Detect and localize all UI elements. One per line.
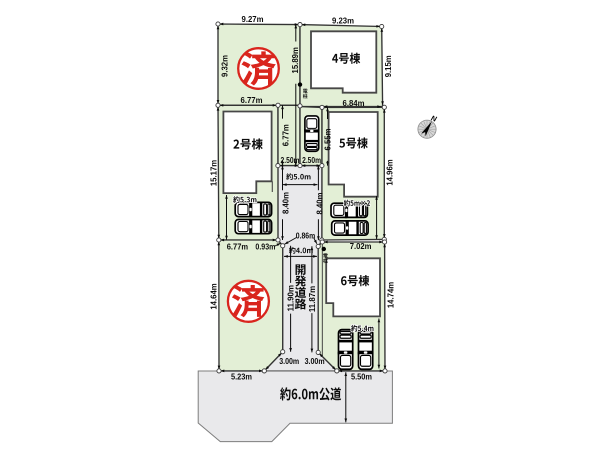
svg-text:0.93m: 0.93m	[255, 242, 275, 251]
svg-text:6.84m: 6.84m	[343, 99, 365, 108]
svg-text:3.00m: 3.00m	[305, 357, 325, 366]
svg-text:8.40m: 8.40m	[282, 192, 291, 214]
svg-text:15.89m: 15.89m	[291, 47, 300, 73]
svg-text:2.50m: 2.50m	[281, 156, 300, 165]
svg-text:11.87m: 11.87m	[308, 286, 317, 312]
svg-text:6.77m: 6.77m	[241, 96, 263, 105]
svg-text:14.64m: 14.64m	[209, 283, 218, 309]
svg-text:6.77m: 6.77m	[227, 242, 248, 251]
svg-text:3.00m: 3.00m	[279, 357, 299, 366]
svg-text:2.50m: 2.50m	[302, 156, 321, 165]
svg-text:14.74m: 14.74m	[386, 282, 395, 308]
svg-text:15.17m: 15.17m	[209, 160, 218, 186]
svg-text:5.23m: 5.23m	[231, 372, 252, 381]
svg-text:7.02m: 7.02m	[350, 242, 372, 251]
svg-text:6.55m: 6.55m	[324, 129, 333, 151]
svg-text:8.40m: 8.40m	[316, 193, 325, 215]
svg-text:14.96m: 14.96m	[385, 159, 394, 185]
svg-text:9.32m: 9.32m	[221, 55, 230, 77]
svg-text:0.86m: 0.86m	[296, 231, 316, 240]
svg-text:5.50m: 5.50m	[351, 372, 372, 381]
svg-text:11.90m: 11.90m	[286, 285, 295, 311]
svg-text:9.15m: 9.15m	[384, 55, 393, 77]
svg-text:9.23m: 9.23m	[332, 16, 354, 25]
svg-text:6.77m: 6.77m	[282, 124, 291, 146]
svg-text:9.27m: 9.27m	[242, 15, 264, 24]
